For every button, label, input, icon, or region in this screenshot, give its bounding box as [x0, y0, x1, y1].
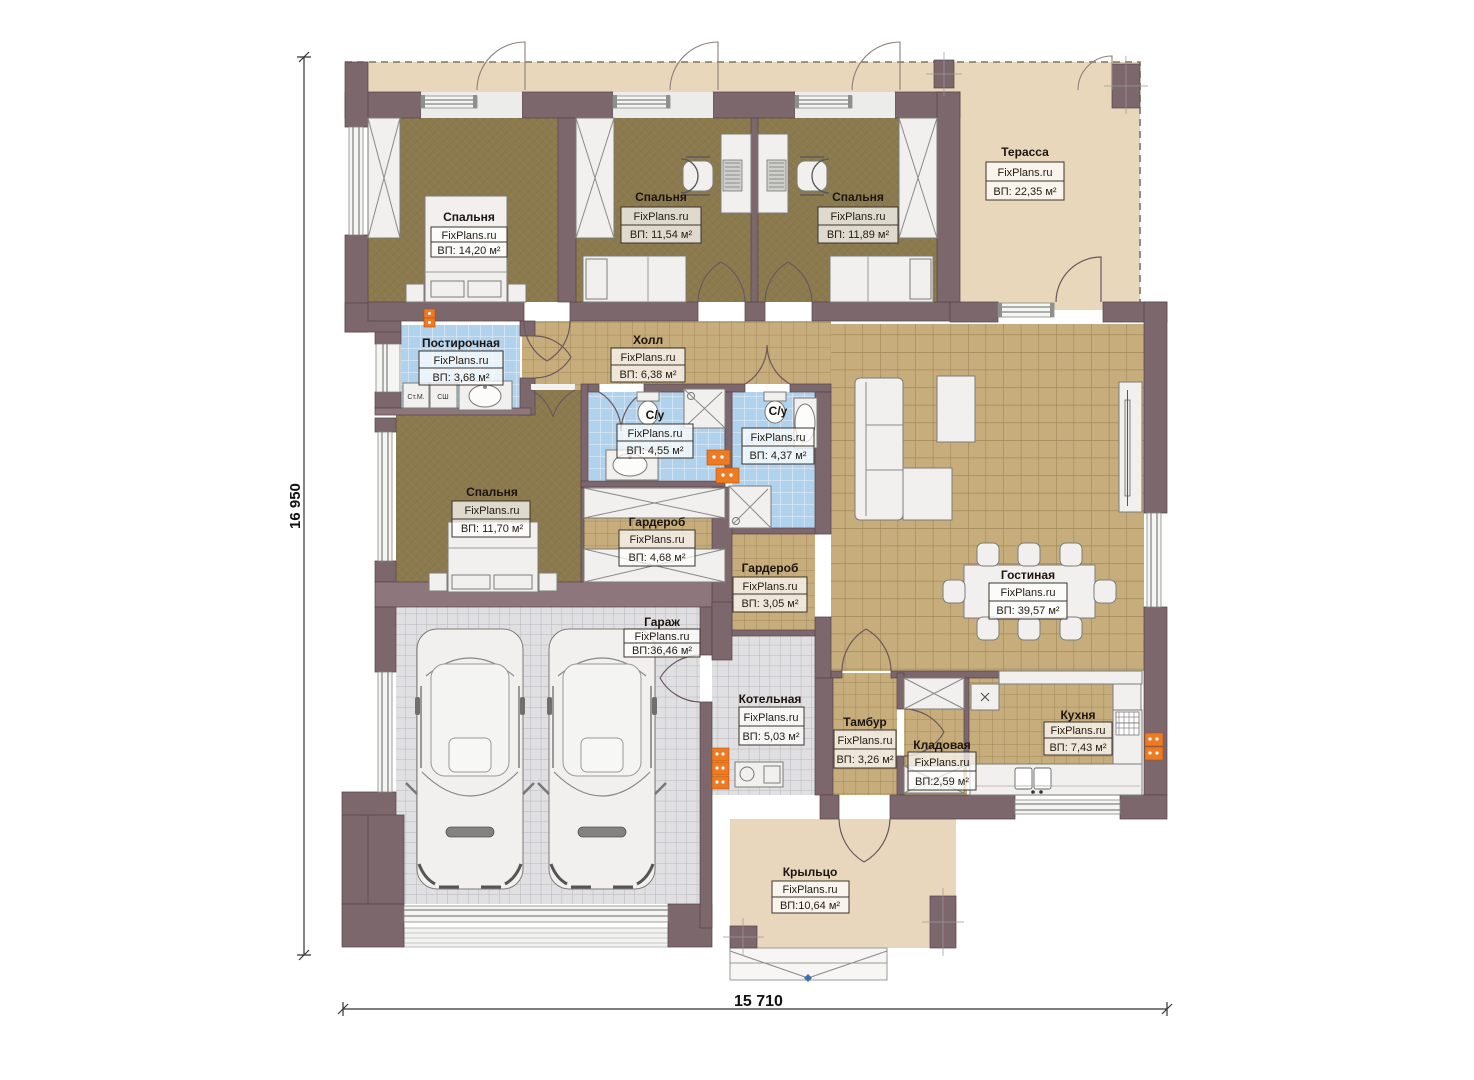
svg-text:С/у: С/у — [646, 408, 665, 422]
svg-text:FixPlans.ru: FixPlans.ru — [750, 432, 805, 444]
svg-text:Котельная: Котельная — [739, 692, 802, 706]
svg-text:Гостиная: Гостиная — [1001, 568, 1055, 582]
svg-text:ВП: 39,57 м²: ВП: 39,57 м² — [996, 605, 1060, 617]
svg-text:ВП: 11,70 м²: ВП: 11,70 м² — [461, 523, 524, 535]
svg-text:15 710: 15 710 — [734, 993, 783, 1010]
svg-text:ВП: 3,26 м²: ВП: 3,26 м² — [836, 754, 893, 766]
svg-text:С/у: С/у — [769, 404, 788, 418]
svg-text:ВП: 14,20 м²: ВП: 14,20 м² — [437, 245, 501, 257]
svg-text:Гардероб: Гардероб — [629, 515, 686, 529]
svg-text:FixPlans.ru: FixPlans.ru — [464, 505, 519, 517]
svg-text:ВП: 11,89 м²: ВП: 11,89 м² — [827, 229, 890, 241]
svg-text:ВП: 4,37 м²: ВП: 4,37 м² — [749, 450, 806, 462]
svg-text:Спальня: Спальня — [635, 190, 687, 204]
svg-text:FixPlans.ru: FixPlans.ru — [830, 211, 885, 223]
svg-text:Спальня: Спальня — [466, 485, 518, 499]
svg-text:FixPlans.ru: FixPlans.ru — [634, 631, 689, 643]
svg-text:FixPlans.ru: FixPlans.ru — [433, 355, 488, 367]
svg-text:FixPlans.ru: FixPlans.ru — [620, 352, 675, 364]
svg-text:Спальня: Спальня — [443, 210, 495, 224]
svg-text:FixPlans.ru: FixPlans.ru — [997, 167, 1052, 179]
svg-text:Ст.М.: Ст.М. — [407, 394, 424, 401]
svg-text:Кухня: Кухня — [1060, 708, 1095, 722]
svg-text:ВП:2,59 м²: ВП:2,59 м² — [915, 776, 969, 788]
svg-text:Терасса: Терасса — [1001, 145, 1049, 159]
svg-text:FixPlans.ru: FixPlans.ru — [629, 534, 684, 546]
svg-text:FixPlans.ru: FixPlans.ru — [914, 757, 969, 769]
svg-text:Кладовая: Кладовая — [913, 738, 970, 752]
svg-text:FixPlans.ru: FixPlans.ru — [627, 428, 682, 440]
svg-text:FixPlans.ru: FixPlans.ru — [742, 581, 797, 593]
svg-text:ВП: 4,55 м²: ВП: 4,55 м² — [626, 445, 683, 457]
svg-text:FixPlans.ru: FixPlans.ru — [837, 735, 892, 747]
svg-text:ВП: 22,35 м²: ВП: 22,35 м² — [993, 186, 1057, 198]
svg-text:ВП: 5,03 м²: ВП: 5,03 м² — [742, 731, 799, 743]
svg-text:Гараж: Гараж — [644, 615, 680, 629]
svg-text:FixPlans.ru: FixPlans.ru — [1000, 587, 1055, 599]
svg-text:Постирочная: Постирочная — [422, 336, 500, 350]
svg-text:Крыльцо: Крыльцо — [783, 865, 838, 879]
svg-text:ВП: 4,68 м²: ВП: 4,68 м² — [628, 552, 685, 564]
svg-text:ВП:10,64 м²: ВП:10,64 м² — [780, 900, 840, 912]
svg-text:ВП: 3,05 м²: ВП: 3,05 м² — [741, 598, 798, 610]
svg-text:ВП: 11,54 м²: ВП: 11,54 м² — [630, 229, 693, 241]
svg-text:ВП: 3,68 м²: ВП: 3,68 м² — [432, 372, 489, 384]
svg-text:FixPlans.ru: FixPlans.ru — [633, 211, 688, 223]
svg-text:16 950: 16 950 — [287, 483, 304, 529]
svg-text:ВП: 6,38 м²: ВП: 6,38 м² — [619, 369, 676, 381]
svg-text:Холл: Холл — [633, 333, 663, 347]
svg-text:FixPlans.ru: FixPlans.ru — [782, 884, 837, 896]
svg-text:Тамбур: Тамбур — [843, 715, 887, 729]
svg-text:FixPlans.ru: FixPlans.ru — [441, 230, 496, 242]
svg-text:FixPlans.ru: FixPlans.ru — [1050, 725, 1105, 737]
svg-text:ВП:36,46 м²: ВП:36,46 м² — [632, 645, 692, 657]
svg-text:Гардероб: Гардероб — [742, 561, 799, 575]
svg-text:Спальня: Спальня — [832, 190, 884, 204]
svg-text:ВП: 7,43 м²: ВП: 7,43 м² — [1049, 742, 1106, 754]
svg-text:FixPlans.ru: FixPlans.ru — [743, 712, 798, 724]
svg-text:СШ: СШ — [437, 394, 448, 401]
